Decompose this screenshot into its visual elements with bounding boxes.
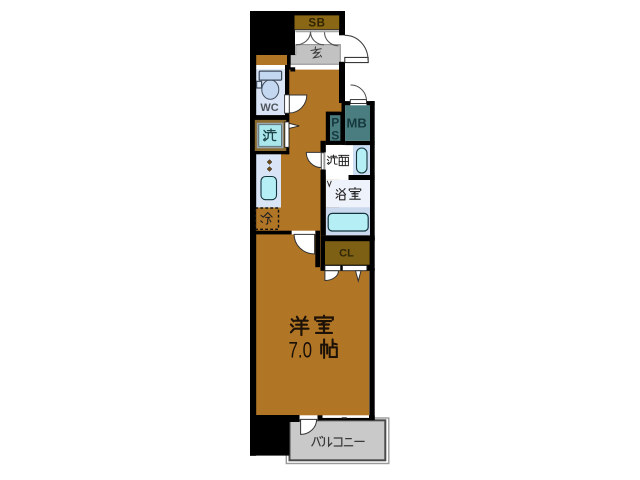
svg-text:CL: CL — [339, 248, 354, 260]
svg-text:7.0: 7.0 — [289, 337, 313, 362]
svg-text:S: S — [331, 129, 339, 143]
svg-text:WC: WC — [260, 102, 278, 114]
svg-text:SB: SB — [308, 17, 325, 29]
svg-text:MB: MB — [346, 115, 366, 130]
svg-text:P: P — [331, 116, 339, 130]
